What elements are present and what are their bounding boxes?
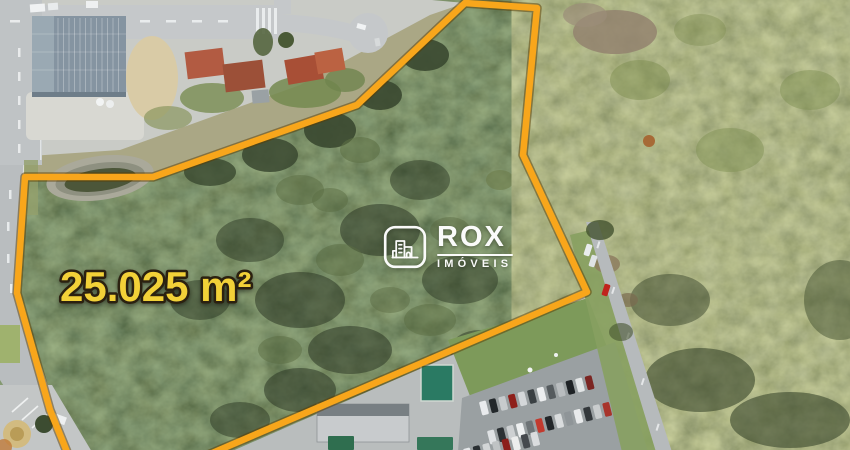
- truck: [48, 3, 58, 11]
- house-roof: [185, 48, 226, 79]
- house-roof: [222, 60, 265, 93]
- rox-wordmark: ROX IMÓVEIS: [437, 224, 513, 270]
- area-label: 25.025 m²: [60, 263, 251, 310]
- brand-divider: [437, 254, 513, 257]
- brand-subtitle: IMÓVEIS: [437, 259, 513, 270]
- pool-roof: [421, 365, 453, 401]
- truck: [86, 1, 98, 8]
- green-roof: [417, 437, 453, 450]
- truck: [30, 3, 46, 12]
- dirt-spot: [643, 135, 655, 147]
- cul-de-sac: [348, 13, 388, 53]
- brand-name: ROX: [437, 224, 513, 252]
- green-roof: [328, 436, 354, 450]
- rox-watermark: ROX IMÓVEIS: [383, 224, 513, 270]
- rox-buildings-icon: [383, 225, 427, 269]
- shed-roof: [252, 89, 270, 103]
- aerial-property-photo: 25.025 m² ROX IMÓVEIS: [0, 0, 850, 450]
